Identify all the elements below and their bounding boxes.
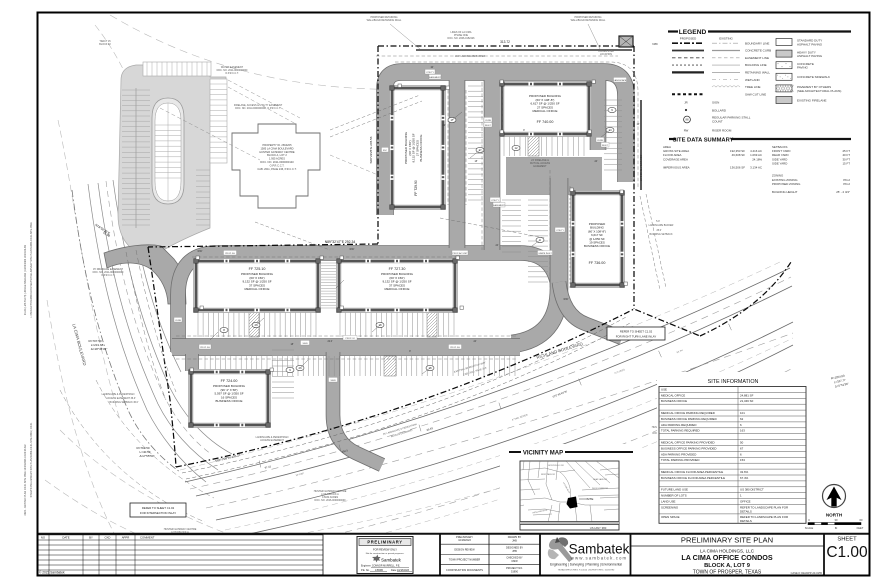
svg-text:SIGN: SIGN [330,380,336,382]
svg-text:313.72: 313.72 [500,40,510,44]
svg-text:CURB: CURB [175,320,182,322]
svg-text:DETAILS: DETAILS [740,510,752,514]
svg-text:TOTAL PARKING PROVIDED: TOTAL PARKING PROVIDED [661,458,699,462]
svg-text:WALL/BUILD RETAINING WALL: WALL/BUILD RETAINING WALL [367,19,402,22]
svg-text:OFFICE: OFFICE [740,500,751,504]
svg-text:(SEE ARCHITECTURAL PLANS): (SEE ARCHITECTURAL PLANS) [797,89,841,93]
svg-text:EXISTING FIRELANE: EXISTING FIRELANE [797,98,827,102]
svg-text:12: 12 [514,146,518,150]
svg-text:MEDICAL OFFICE: MEDICAL OFFICE [244,287,269,291]
svg-text:COUNT: COUNT [712,120,723,124]
svg-text:24': 24' [495,244,499,247]
svg-text:2023 - KRISTEN PLAN C3.01 SITE: 2023 - KRISTEN PLAN C3.01 SITE DWG 10/23… [24,445,27,516]
svg-text:24,881 SF: 24,881 SF [740,393,754,397]
svg-text:DOC. NO. 2011-0000000000, O.P.: DOC. NO. 2011-0000000000, O.P.R.C.C.T. [235,107,281,110]
svg-text:CAB. 2011, PAGE 246, P.R.C.C.T: CAB. 2011, PAGE 246, P.R.C.C.T. [257,167,296,171]
svg-text:CONCRETE SIDEWALK: CONCRETE SIDEWALK [797,75,830,79]
svg-text:DOC. NO. 2006-0152426: DOC. NO. 2006-0152426 [448,37,476,40]
svg-text:BUILDING LINE: BUILDING LINE [745,63,767,67]
svg-text:www.sambatek.com: www.sambatek.com [571,556,628,561]
svg-text:SAW CUT LINE: SAW CUT LINE [745,92,766,96]
svg-text:CONSTRUCTION DOCUMENTS: CONSTRUCTION DOCUMENTS [446,569,483,572]
svg-text:LA CIMA OFFICE CONDOS: LA CIMA OFFICE CONDOS [681,553,773,562]
svg-text:EASEMENT LINE: EASEMENT LINE [745,56,769,60]
svg-text:WILDFLOWER DR: WILDFLOWER DR [592,488,609,490]
svg-text:INLET: INLET [602,145,609,147]
svg-text:R30': R30' [564,298,569,301]
svg-text:WETLAND: WETLAND [745,78,761,82]
svg-text:PROP. AC UNIT: PROP. AC UNIT [453,252,469,255]
svg-text:10.0' LANDSCAPE BUFFER: 10.0' LANDSCAPE BUFFER [455,55,486,58]
svg-text:FF 729.90: FF 729.90 [414,180,418,196]
svg-text:24-22 (LMS TECH) | JORGE BAR: 24-22 (LMS TECH) | JORGE BARUJAS | 10/23… [24,245,27,315]
svg-text:46,608 SF: 46,608 SF [732,153,746,157]
svg-text:JHB: JHB [512,550,517,553]
svg-text:IMPERVIOUS AREA: IMPERVIOUS AREA [663,166,690,170]
svg-text:BUSINESS OFFICE PARKING PROVID: BUSINESS OFFICE PARKING PROVIDED [661,446,717,450]
svg-text:1585 LA CIMA BOULEVARD: 1585 LA CIMA BOULEVARD [260,146,293,150]
svg-text:ASPHALT PAVING: ASPHALT PAVING [797,54,823,58]
svg-text:CURB: CURB [597,140,604,142]
svg-text:ACCESS EASEMENT: ACCESS EASEMENT [260,439,284,442]
svg-text:SIGN: SIGN [712,101,719,105]
svg-text:FF 740.00: FF 740.00 [537,120,554,124]
svg-text:Δ=2°55'50": Δ=2°55'50" [140,454,155,458]
svg-text:CONCRETE CURB: CONCRETE CURB [745,49,771,53]
svg-text:UTILITY: UTILITY [426,72,434,74]
svg-text:10': 10' [430,66,434,69]
svg-text:LAND USE: LAND USE [661,500,676,504]
svg-text:67: 67 [740,446,744,450]
svg-text:BUSINESS OFFICE: BUSINESS OFFICE [419,134,423,161]
svg-text:PROP. FH: PROP. FH [200,347,210,349]
svg-text:PD-2: PD-2 [843,182,850,186]
svg-text:FOR INTERSECTION INLAY: FOR INTERSECTION INLAY [140,511,176,515]
svg-text:Δ=18°45'45": Δ=18°45'45" [91,347,108,351]
svg-text:PROP. 24: PROP. 24 [345,338,355,340]
svg-text:ACCESS EASEMENT 36.0': ACCESS EASEMENT 36.0' [106,397,136,400]
svg-text:N89°32'47"E 292.34: N89°32'47"E 292.34 [325,240,356,244]
svg-text:BUSINESS OFFICE PARKING REQUIR: BUSINESS OFFICE PARKING REQUIRED [661,417,717,421]
svg-text:BUSINESS OFFICE: BUSINESS OFFICE [661,399,687,403]
svg-text:14': 14' [636,123,640,126]
svg-text:ASPHALT PAVING: ASPHALT PAVING [797,43,823,47]
svg-text:SCALE: SCALE [805,526,814,530]
svg-text:MEDICAL OFFICE: MEDICAL OFFICE [661,393,685,397]
svg-text:BUSINESS OFFICE: BUSINESS OFFICE [215,399,242,403]
svg-text:Not for construction or permit: Not for construction or permit purposes. [366,552,405,555]
svg-text:REFER TO SHEET C1.02: REFER TO SHEET C1.02 [620,330,653,334]
svg-text:135086: 135086 [375,569,384,572]
svg-text:S00°29'25"E 245.56: S00°29'25"E 245.56 [369,136,373,163]
svg-text:BLOCK A, LOT 2: BLOCK A, LOT 2 [267,153,287,157]
svg-text:LANDSCAPE & PEDESTRIAN: LANDSCAPE & PEDESTRIAN [102,393,135,396]
svg-text:RETAINING WALL: RETAINING WALL [745,71,770,75]
svg-text:TOWN PROJECT NUMBER: TOWN PROJECT NUMBER [449,559,481,562]
svg-text:10/18/2023: 10/18/2023 [397,569,410,572]
svg-text:BLOCK 22: BLOCK 22 [99,43,111,46]
svg-text:24': 24' [442,124,446,127]
svg-text:BOLLARD: BOLLARD [712,109,727,113]
svg-text:18: 18 [378,323,382,327]
svg-text:PRELIMINARY: PRELIMINARY [367,540,402,545]
svg-text:NUMBER OF LOTS: NUMBER OF LOTS [661,494,687,498]
svg-text:PROP. FH: PROP. FH [225,253,235,255]
svg-text:MEDICAL OFFICE: MEDICAL OFFICE [384,287,409,291]
svg-text:FDC: FDC [383,150,388,152]
svg-text:CKD: CKD [105,536,111,540]
svg-text:RISER ROOM: RISER ROOM [712,129,732,133]
svg-text:SHEETS\PRELIMINARY SITE PLAN\5: SHEETS\PRELIMINARY SITE PLAN\51990-C3.01… [30,422,33,497]
svg-text:14: 14 [608,128,612,132]
svg-text:1.955 ACRES: 1.955 ACRES [269,157,285,161]
svg-text:PAVING: PAVING [797,66,809,70]
svg-text:TEXAS BPELS REG. F-10014 | S: TEXAS BPELS REG. F-10014 | SURVEY REG. 1… [558,569,615,572]
svg-text:CURB: CURB [485,120,492,122]
svg-text:NORTH: NORTH [826,513,843,518]
svg-text:MEDICAL OFFICE FLOOR AREA PERC: MEDICAL OFFICE FLOOR AREA PERCENTILE [661,470,723,474]
svg-text:3.134 AC: 3.134 AC [750,166,762,170]
svg-text:P.E. No.: P.E. No. [361,569,370,572]
svg-text:EASEMENT: EASEMENT [493,204,505,207]
svg-text:O.P.R.C.C.T.: O.P.R.C.C.T. [225,72,239,75]
svg-text:PRELIMINARY SITE PLAN: PRELIMINARY SITE PLAN [681,536,773,545]
svg-text:DOC. NO. 2011-0000000140: DOC. NO. 2011-0000000140 [260,160,294,164]
svg-text:FF 725.10: FF 725.10 [249,267,266,271]
svg-text:PROPERTY ID. 2664205: PROPERTY ID. 2664205 [262,143,292,147]
svg-text:Sambatek: Sambatek [381,558,402,563]
svg-text:MEDICAL OFFICE PARKING REQUIRE: MEDICAL OFFICE PARKING REQUIRED [661,411,715,415]
svg-text:15 FT: 15 FT [842,161,850,165]
svg-text:18': 18' [290,343,294,346]
svg-text:FOR REVIEW ONLY: FOR REVIEW ONLY [373,548,397,552]
svg-text:Engineer:: Engineer: [361,565,372,568]
svg-text:Sambatek: Sambatek [569,542,630,557]
svg-text:REFER TO SHEET C1.02: REFER TO SHEET C1.02 [142,506,175,510]
svg-text:SIDE YARD: SIDE YARD [772,161,787,165]
svg-text:24': 24' [594,160,598,163]
svg-text:EASEMENT: EASEMENT [429,76,441,79]
svg-text:ADA PARKING REQUIRED: ADA PARKING REQUIRED [661,423,696,427]
svg-text:24.18%: 24.18% [752,157,762,161]
svg-text:CHECKED BY: CHECKED BY [506,557,523,560]
svg-text:SITE: SITE [587,497,594,501]
svg-text:FUTURE LAND USE: FUTURE LAND USE [661,488,688,492]
svg-text:UTILITY: UTILITY [556,230,564,232]
svg-text:88: 88 [685,118,689,122]
svg-text:TOTAL PARKING REQUIRED: TOTAL PARKING REQUIRED [661,429,700,433]
svg-text:BUSINESS OFFICE: BUSINESS OFFICE [584,244,610,248]
svg-text:FF 724.00: FF 724.00 [221,379,238,383]
svg-text:FF 736.00: FF 736.00 [589,261,606,265]
svg-text:PROP. FH: PROP. FH [450,347,460,349]
svg-text:N89: N89 [652,42,658,46]
svg-text:ADA PARKING PROVIDED: ADA PARKING PROVIDED [661,452,696,456]
svg-text:25' - 2 3/4": 25' - 2 3/4" [836,190,850,194]
svg-text:FOR RIGHT TURN LANE INLAY: FOR RIGHT TURN LANE INLAY [616,335,657,339]
svg-text:DRAWN BY: DRAWN BY [508,536,522,539]
svg-text:OPEN SPACE: OPEN SPACE [661,515,680,519]
svg-text:136,506 SF: 136,506 SF [730,166,745,170]
svg-text:PROJECT NO.: PROJECT NO. [506,567,523,570]
svg-text:O.P.R.C.C.T.: O.P.R.C.C.T. [270,163,285,167]
svg-text:DOC. NO. 2016-0000000000: DOC. NO. 2016-0000000000 [315,499,347,502]
svg-text:PROPOSED: PROPOSED [680,37,696,41]
svg-text:22.0': 22.0' [327,340,333,343]
svg-text:5.0': 5.0' [656,220,660,223]
svg-text:O.P.R.C.C.T.: O.P.R.C.C.T. [101,274,115,277]
svg-text:IN: IN [835,526,838,530]
svg-text:TREE LINE: TREE LINE [745,85,761,89]
svg-text:C1.00: C1.00 [826,544,868,561]
svg-text:DESIGN REVIEW: DESIGN REVIEW [454,548,475,551]
svg-text:DATE: DATE [62,536,69,540]
svg-text:163: 163 [740,429,745,433]
svg-text:RW: RW [684,129,689,133]
svg-text:BUILDING SETBACK 36.0': BUILDING SETBACK 36.0' [110,401,139,404]
svg-text:101: 101 [740,411,745,415]
svg-text:62: 62 [740,417,744,421]
svg-text:CASE #: DEVAPP-23-0155: CASE #: DEVAPP-23-0155 [791,571,823,575]
svg-text:MEDICAL OFFICE PARKING PROVIDE: MEDICAL OFFICE PARKING PROVIDED [661,441,715,445]
svg-text:JHB: JHB [512,540,517,543]
svg-text:R30': R30' [198,250,203,253]
svg-text:JR: JR [684,101,687,105]
svg-text:EXISTING: EXISTING [719,37,733,41]
svg-text:BUILDING HEIGHT: BUILDING HEIGHT [772,190,798,194]
svg-text:EASEMENT: EASEMENT [533,165,547,168]
svg-text:67.4%: 67.4% [740,476,749,480]
svg-text:32.6%: 32.6% [740,470,749,474]
svg-text:LANDSCAPE: LANDSCAPE [614,79,627,82]
svg-text:51990: 51990 [511,570,519,573]
svg-text:FF 727.30: FF 727.30 [389,267,406,271]
svg-text:GRATE INLET: GRATE INLET [538,252,552,255]
svg-text:US HWY 380: US HWY 380 [590,526,607,530]
svg-text:LEGEND: LEGEND [679,29,707,36]
svg-text:DETAILS: DETAILS [740,519,752,523]
svg-text:SITE DATA SUMMARY: SITE DATA SUMMARY [673,137,734,143]
svg-text:DESIGNED BY: DESIGNED BY [506,546,523,549]
svg-text:USE: USE [661,387,667,391]
svg-text:L:\PROJECTS\51990\CAD\SHEETS\P: L:\PROJECTS\51990\CAD\SHEETS\PRELIMINARY… [30,222,33,318]
svg-text:R30': R30' [350,248,355,251]
svg-text:21,346 SF: 21,346 SF [740,399,754,403]
svg-text:BLOCK A, LOT 9: BLOCK A, LOT 9 [704,563,751,569]
svg-text:PROPOSED ZONING: PROPOSED ZONING [772,182,801,186]
svg-text:SIGN: SIGN [302,343,308,345]
svg-text:CONNOR MURRELL, P.E.: CONNOR MURRELL, P.E. [372,565,401,568]
svg-text:GEAR LAKE DR: GEAR LAKE DR [593,478,608,481]
svg-text:Engineering | Surveying | Plan: Engineering | Surveying | Planning | Env… [550,563,622,567]
svg-text:FIRST PASS DR: FIRST PASS DR [541,473,556,476]
svg-text:BUSINESS OFFICE FLOOR AREA PER: BUSINESS OFFICE FLOOR AREA PERCENTILE [661,476,725,480]
svg-text:BOUNDARY LINE: BOUNDARY LINE [745,41,769,45]
svg-text:COMMENT: COMMENT [140,536,155,540]
svg-text:25.0': 25.0' [656,229,662,232]
svg-text:COVERAGE AREA: COVERAGE AREA [663,157,688,161]
svg-text:SITE INFORMATION: SITE INFORMATION [708,379,759,385]
svg-text:MEDICAL OFFICE: MEDICAL OFFICE [532,109,557,113]
svg-text:BY: BY [89,536,93,540]
svg-text:HUNTER GATEWAY CENTRE: HUNTER GATEWAY CENTRE [259,150,295,154]
svg-text:10/18/2023: 10/18/2023 [458,539,471,542]
svg-text:24': 24' [473,340,477,343]
svg-text:US 380 DISTRICT: US 380 DISTRICT [740,488,764,492]
svg-text:18: 18 [428,366,432,370]
svg-text:APPR: APPR [122,536,130,540]
svg-text:50: 50 [740,441,744,445]
svg-text:BUILDING SETBACK: BUILDING SETBACK [649,233,673,236]
svg-text:SHEET: SHEET [837,537,857,543]
svg-text:MONTICELLO DR: MONTICELLO DR [548,465,564,467]
svg-text:18': 18' [474,160,478,163]
svg-text:© 2023 Sambatek: © 2023 Sambatek [39,571,65,575]
svg-text:UTILITY: UTILITY [491,200,499,202]
svg-text:LOCATION: LOCATION [600,53,612,56]
svg-text:WALL/BUILD RETAINING WALL: WALL/BUILD RETAINING WALL [571,19,606,22]
svg-text:VICINITY MAP: VICINITY MAP [523,450,563,456]
svg-text:17: 17 [478,148,482,152]
svg-text:CMW: CMW [511,560,518,563]
svg-text:SCREENING: SCREENING [661,505,679,509]
svg-text:INLET: INLET [485,125,492,127]
svg-text:FEET: FEET [857,526,864,530]
svg-text:153: 153 [740,458,745,462]
